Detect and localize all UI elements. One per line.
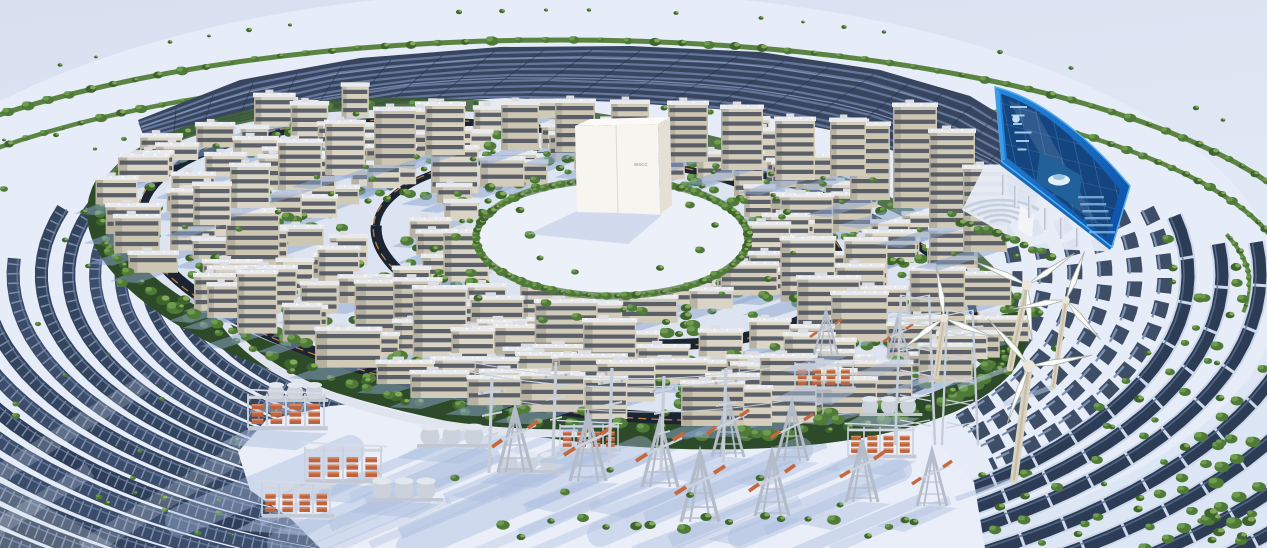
svg-text:WSCC: WSCC xyxy=(634,162,648,167)
